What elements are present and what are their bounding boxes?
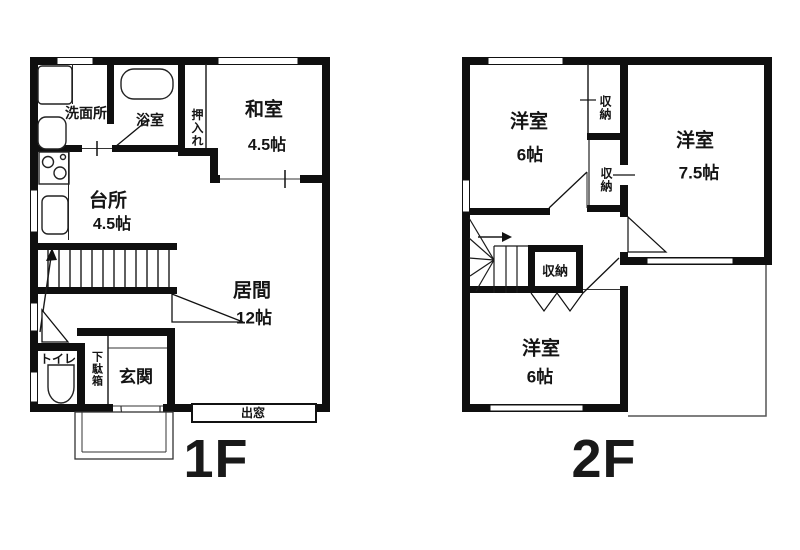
room-label-yoshitsu-a: 洋室 (510, 113, 548, 132)
floor2-title: 2F (571, 432, 636, 486)
room-size-yoshitsu-b: 7.5帖 (679, 165, 720, 182)
room-size-ima: 12帖 (236, 310, 272, 327)
room-label-ima: 居間 (233, 282, 271, 301)
room-size-yoshitsu-a: 6帖 (517, 147, 543, 164)
room-label-oshiire: 押入れ (191, 109, 203, 148)
room-label-washitsu: 和室 (245, 101, 283, 120)
floor2-balcony-outline (628, 265, 766, 416)
floorplan-canvas: 洗面所 浴室 押入れ 和室 4.5帖 台所 4.5帖 居間 12帖 トイレ 下駄… (0, 0, 800, 550)
room-label-yoshitsu-b: 洋室 (676, 132, 714, 151)
floor2-stairs (469, 218, 528, 293)
room-label-toire: トイレ (40, 353, 76, 365)
floor1-title: 1F (183, 432, 248, 486)
room-size-daidokoro: 4.5帖 (93, 217, 131, 233)
room-label-getabako: 下駄箱 (91, 351, 102, 387)
room-size-washitsu: 4.5帖 (248, 138, 286, 154)
label-demado: 出窓 (241, 407, 265, 419)
room-label-yoshitsu-c: 洋室 (522, 340, 560, 359)
room-label-shuno-c: 収納 (542, 265, 568, 278)
floor2-walls (462, 57, 772, 412)
room-label-senmenjo: 洗面所 (65, 106, 107, 120)
floorplan-graphics (0, 0, 800, 550)
room-label-daidokoro: 台所 (89, 192, 127, 211)
room-label-shuno-a: 収納 (599, 95, 611, 121)
room-label-genkan: 玄関 (119, 369, 153, 386)
room-label-shuno-b: 収納 (600, 167, 612, 193)
room-size-yoshitsu-c: 6帖 (527, 369, 553, 386)
room-label-yokushitsu: 浴室 (136, 113, 164, 127)
